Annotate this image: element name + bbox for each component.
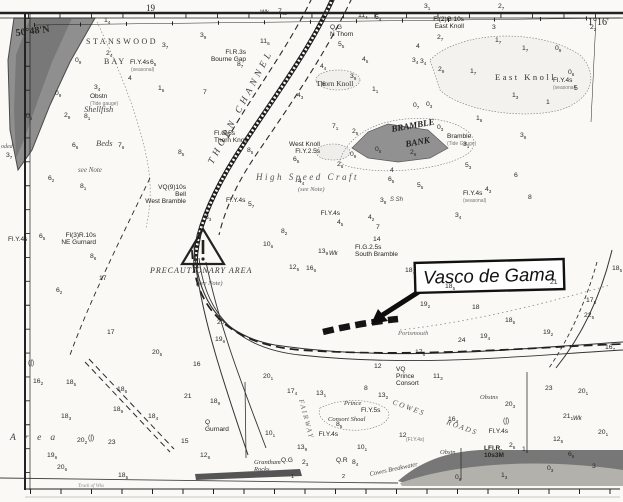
depth-sounding: 164 xyxy=(448,416,459,424)
depth-sounding: 45 xyxy=(337,219,344,227)
depth-sounding: 201 xyxy=(263,373,274,381)
depth-sounding: 38 xyxy=(380,197,387,205)
vasco-de-gama-callout: Vasco de Gama xyxy=(371,259,564,324)
caution-exclamation-dot xyxy=(201,257,204,260)
depth-sounding: 65 xyxy=(388,176,395,184)
light-label: Fl.Y.4s xyxy=(489,428,509,435)
depth-sounding: 62 xyxy=(48,175,55,183)
depth-sounding: 65 xyxy=(150,59,157,67)
buoy-name: West Bramble xyxy=(145,198,186,205)
light-label: Q.G xyxy=(281,457,293,464)
depth-sounding: 43 xyxy=(297,92,304,100)
depth-sounding: 6 xyxy=(322,81,326,88)
note-text: (see Note) xyxy=(196,280,223,287)
obstruction-label: Obstn xyxy=(440,449,456,456)
depth-sounding: 39 xyxy=(200,32,207,40)
depth-sounding: 4 xyxy=(390,167,394,174)
depth-sounding: 6 xyxy=(514,172,518,179)
depth-sounding: 84 xyxy=(352,459,359,467)
depth-sounding: 11 xyxy=(372,86,379,94)
depth-sounding: 45 xyxy=(362,56,369,64)
depth-sounding: 139 xyxy=(297,444,308,452)
depth-sounding: 86 xyxy=(90,253,97,261)
depth-sounding: 185 xyxy=(505,317,516,325)
meridian-line xyxy=(591,18,596,122)
light-label: Fl.Y.4s xyxy=(130,59,150,66)
light-label: Q.G xyxy=(330,24,342,31)
depth-sounding: 37 xyxy=(162,42,169,50)
depth-sounding: 24 xyxy=(106,50,113,58)
place-name: Beds xyxy=(96,138,113,148)
depth-sounding: 139 xyxy=(318,248,329,256)
chart-content-layer: 50°48'N191°16'STANSWOODBAYShellfishBedss… xyxy=(1,3,623,489)
light-label: Fl.Y.4s xyxy=(319,431,339,438)
depth-sounding: 4 xyxy=(128,75,132,82)
depth-sounding: 09 xyxy=(55,90,62,98)
depth-sounding: 55 xyxy=(417,182,424,190)
depth-sounding: 54 xyxy=(375,14,382,22)
depth-sounding: 192 xyxy=(420,301,431,309)
depth-sounding: 16 xyxy=(522,446,529,454)
place-name: C O W E S xyxy=(391,397,425,417)
seabed-label: S Sh xyxy=(390,197,404,203)
buoy-number: 1 xyxy=(291,474,294,480)
light-label: Q xyxy=(205,419,210,426)
depth-sounding: 15 xyxy=(181,438,189,445)
wreck-label: Wk xyxy=(573,416,583,422)
depth-sounding: 204 xyxy=(217,319,228,327)
depth-sounding: 83 xyxy=(205,214,212,222)
cable-line-2 xyxy=(89,359,174,449)
obstruction-label: Obstn xyxy=(90,93,108,100)
depth-sounding: 25 xyxy=(352,128,359,136)
depth-sounding: 29 xyxy=(64,112,71,120)
depth-sounding: 34 xyxy=(94,84,101,92)
light-label: (Tide gauge) xyxy=(90,101,118,107)
depth-sounding: 113 xyxy=(433,373,443,381)
depth-sounding: 03 xyxy=(437,124,444,132)
depth-sounding: 44 xyxy=(320,63,327,71)
depth-sounding: 12 xyxy=(374,363,382,370)
depth-sounding: 101 xyxy=(265,430,276,438)
place-name: STANSWOOD xyxy=(86,37,158,46)
overfalls-symbol: (ʃ) xyxy=(88,435,94,442)
depth-sounding: 131 xyxy=(316,390,327,398)
depth-sounding: 34 xyxy=(412,57,419,65)
light-label: Fl(2)G 10s xyxy=(433,16,464,23)
depth-sounding: 23 xyxy=(545,385,553,392)
depth-sounding: 53 xyxy=(465,162,472,170)
depth-sounding: 21 xyxy=(184,393,192,400)
depth-sounding: 34 xyxy=(420,58,427,66)
obstruction-label: Obstns xyxy=(480,394,499,401)
depth-sounding: 03 xyxy=(426,101,433,109)
depth-sounding: 175 xyxy=(586,297,597,305)
note-text: Track of Wks xyxy=(78,484,104,489)
buoy-name: South Bramble xyxy=(355,251,398,258)
depth-sounding: 26 xyxy=(337,161,344,169)
depth-sounding: 24 xyxy=(458,337,466,344)
depth-sounding: 189 xyxy=(113,406,124,414)
light-label: Fl.Y.2.5s xyxy=(295,148,321,155)
depth-sounding: 196 xyxy=(215,336,226,344)
depth-sounding: 8 xyxy=(364,385,368,392)
light-label: VQ(9)10s xyxy=(158,184,187,191)
depth-sounding: 176 xyxy=(415,349,426,357)
depth-sounding: 194 xyxy=(480,333,491,341)
light-label: VQ xyxy=(396,366,405,373)
depth-sounding: 82 xyxy=(281,228,288,236)
light-label: Fl.R.3s xyxy=(225,49,246,56)
buoy-name: Bourne Gap xyxy=(211,56,246,63)
buoy-name: East Knoll xyxy=(435,23,465,30)
depth-sounding: 17 xyxy=(107,329,115,336)
depth-sounding: 21 xyxy=(550,279,558,286)
callout-arrow-shaft xyxy=(381,291,420,316)
depth-sounding: 184 xyxy=(148,413,159,421)
buoy-name: West Knoll xyxy=(289,141,321,148)
depth-sounding: 7 xyxy=(376,224,380,231)
depth-sounding: 09 xyxy=(350,151,357,159)
depth-sounding: 62 xyxy=(56,287,63,295)
place-name: Prince xyxy=(343,400,361,407)
depth-sounding: 132 xyxy=(378,392,389,400)
depth-sounding: 162 xyxy=(33,378,44,386)
wreck-label: Wk xyxy=(260,10,270,16)
light-label: LFl.R. xyxy=(484,445,502,452)
light-label: (Tide Gauge) xyxy=(447,141,477,147)
depth-sounding: 185 xyxy=(612,265,623,273)
wreck-label: Wk xyxy=(329,251,339,257)
light-label: Fl.Y.4s xyxy=(553,77,573,84)
depth-sounding: 211 xyxy=(563,413,574,421)
light-label: Fl(3)R.10s xyxy=(66,232,97,239)
depth-sounding: 206 xyxy=(57,464,68,472)
depth-sounding: 85 xyxy=(178,149,185,157)
depth-sounding: 3 xyxy=(592,463,596,470)
depth-sounding: 202 xyxy=(77,437,88,445)
depth-sounding: 203 xyxy=(505,401,516,409)
depth-sounding: 3 xyxy=(492,24,496,31)
depth-sounding: 205 xyxy=(152,349,163,357)
depth-sounding: 189 xyxy=(210,398,221,406)
light-label: (seasonal) xyxy=(463,198,487,204)
area-label: PRECAUTIONARY AREA xyxy=(149,266,252,275)
light-label: 10s3M xyxy=(484,452,504,459)
depth-sounding: 5 xyxy=(574,85,578,92)
light-label: Bell xyxy=(175,191,186,198)
depth-sounding: 26 xyxy=(509,442,516,450)
depth-sounding: 8 xyxy=(528,194,532,201)
light-label: (Fl.Y.4s) xyxy=(406,437,425,443)
depth-sounding: 18 xyxy=(472,304,480,311)
depth-sounding: 4 xyxy=(416,43,420,50)
depth-sounding: 27 xyxy=(437,34,444,42)
place-name: Grantham xyxy=(254,459,281,466)
fairway-label: FAIRWAY xyxy=(297,397,316,440)
depth-sounding: 183 xyxy=(61,413,72,421)
cowes-breakwater-wall xyxy=(195,469,302,480)
depth-sounding: 37 xyxy=(6,152,13,160)
callout-label: Vasco de Gama xyxy=(423,263,555,287)
buoy-name: Consort xyxy=(396,380,419,387)
depth-sounding: 201 xyxy=(578,388,589,396)
depth-sounding: 36 xyxy=(520,132,527,140)
depth-sounding: 742 xyxy=(278,8,287,16)
depth-sounding: 55 xyxy=(338,41,345,49)
edge-fragment: oded xyxy=(1,144,14,150)
place-name: East Knoll xyxy=(495,72,556,82)
buoy-name: Bramble xyxy=(447,133,472,140)
depth-sounding: 07 xyxy=(413,102,420,110)
depth-sounding: 71 xyxy=(332,123,339,131)
buoy-name: Prince xyxy=(396,373,415,380)
light-label: Fl.Y.4s xyxy=(463,190,483,197)
depth-sounding: 7 xyxy=(203,89,207,96)
depth-sounding: 225 xyxy=(584,312,595,320)
depth-sounding: 09 xyxy=(75,57,82,65)
cable-line xyxy=(85,362,170,452)
light-label: Fl.Y.5s xyxy=(361,407,381,414)
depth-sounding: 42 xyxy=(368,214,375,222)
light-label: Fl.Y.4s xyxy=(226,197,246,204)
west-knoll-contour xyxy=(316,144,350,160)
depth-sounding: 185 xyxy=(118,472,129,480)
light-label: (seasonal) xyxy=(131,67,155,73)
depth-sounding: 106 xyxy=(263,241,274,249)
depth-sounding: 57 xyxy=(248,201,255,209)
depth-sounding: 196 xyxy=(47,452,58,460)
buoy-name: NE Gurnard xyxy=(61,239,96,246)
depth-sounding: 101 xyxy=(357,444,368,452)
depth-sounding: 65 xyxy=(39,233,46,241)
depth-sounding: 34 xyxy=(455,212,462,220)
depth-sounding: 16 xyxy=(158,85,165,93)
depth-sounding: 16 xyxy=(476,115,483,123)
depth-sounding: 201 xyxy=(598,429,609,437)
depth-sounding: 23 xyxy=(108,439,116,446)
latitude-line xyxy=(34,18,620,25)
light-label: Fl.G.2.5s xyxy=(355,244,382,251)
note-text: (see Note) xyxy=(298,186,325,193)
caution-area-symbol xyxy=(182,229,224,264)
route-label: High Speed Craft xyxy=(255,172,359,182)
depth-sounding: 17 xyxy=(99,275,107,282)
light-label: Fl.Y.4s xyxy=(321,210,341,217)
depth-sounding: 16 xyxy=(193,361,201,368)
place-name: Consort Shoal xyxy=(328,416,366,423)
buoy-number: 2 xyxy=(342,474,345,480)
depth-sounding: 126 xyxy=(200,452,211,460)
depth-sounding: 31 xyxy=(424,3,431,11)
depth-sounding: 43 xyxy=(485,186,492,194)
buoy-name: Thorn Knoll xyxy=(214,137,248,144)
depth-sounding: 76 xyxy=(118,142,125,150)
depth-sounding: 65 xyxy=(293,156,300,164)
depth-sounding: 125 xyxy=(553,436,564,444)
overfalls-symbol: (ʃ) xyxy=(503,418,509,425)
nautical-chart-page: Vasco de Gama 50°48'N191°16'STANSWOODBAY… xyxy=(0,0,623,502)
depth-sounding: 166 xyxy=(306,265,317,273)
place-name: Rocks xyxy=(253,466,270,473)
depth-sounding: 186 xyxy=(117,386,128,394)
buoy-name: Gurnard xyxy=(205,426,229,433)
route-label: Portsmouth xyxy=(397,330,428,337)
note-text: see Note xyxy=(78,166,102,174)
depth-sounding: 23 xyxy=(302,459,309,467)
depth-sounding: 185 xyxy=(66,379,77,387)
depth-sounding: 14 xyxy=(373,236,381,243)
buoy-name: N Thorn xyxy=(330,31,354,38)
depth-sounding: 27 xyxy=(498,3,505,11)
depth-sounding: 85 xyxy=(247,147,254,155)
place-name: BAY xyxy=(104,57,126,66)
overfalls-symbol: (ʃ) xyxy=(28,360,34,367)
light-label: Fl.G.5s xyxy=(214,130,236,137)
depth-sounding: 125 xyxy=(289,264,300,272)
light-label: Fl.Y.4s xyxy=(8,236,28,243)
depth-sounding: 12 xyxy=(399,432,407,439)
depth-sounding: 116 xyxy=(260,38,270,46)
depth-sounding: 81 xyxy=(84,113,91,121)
stanswood-drying-line xyxy=(97,22,150,228)
depth-sounding: 1 xyxy=(546,99,550,106)
depth-sounding: 174 xyxy=(287,388,298,396)
depth-sounding: 81 xyxy=(80,183,87,191)
depth-sounding: 66 xyxy=(72,142,79,150)
light-label: Q.R xyxy=(336,457,348,464)
area-label: Area xyxy=(9,433,64,443)
depth-sounding: 192 xyxy=(543,329,554,337)
longitude-minute-label: 19 xyxy=(146,3,156,13)
